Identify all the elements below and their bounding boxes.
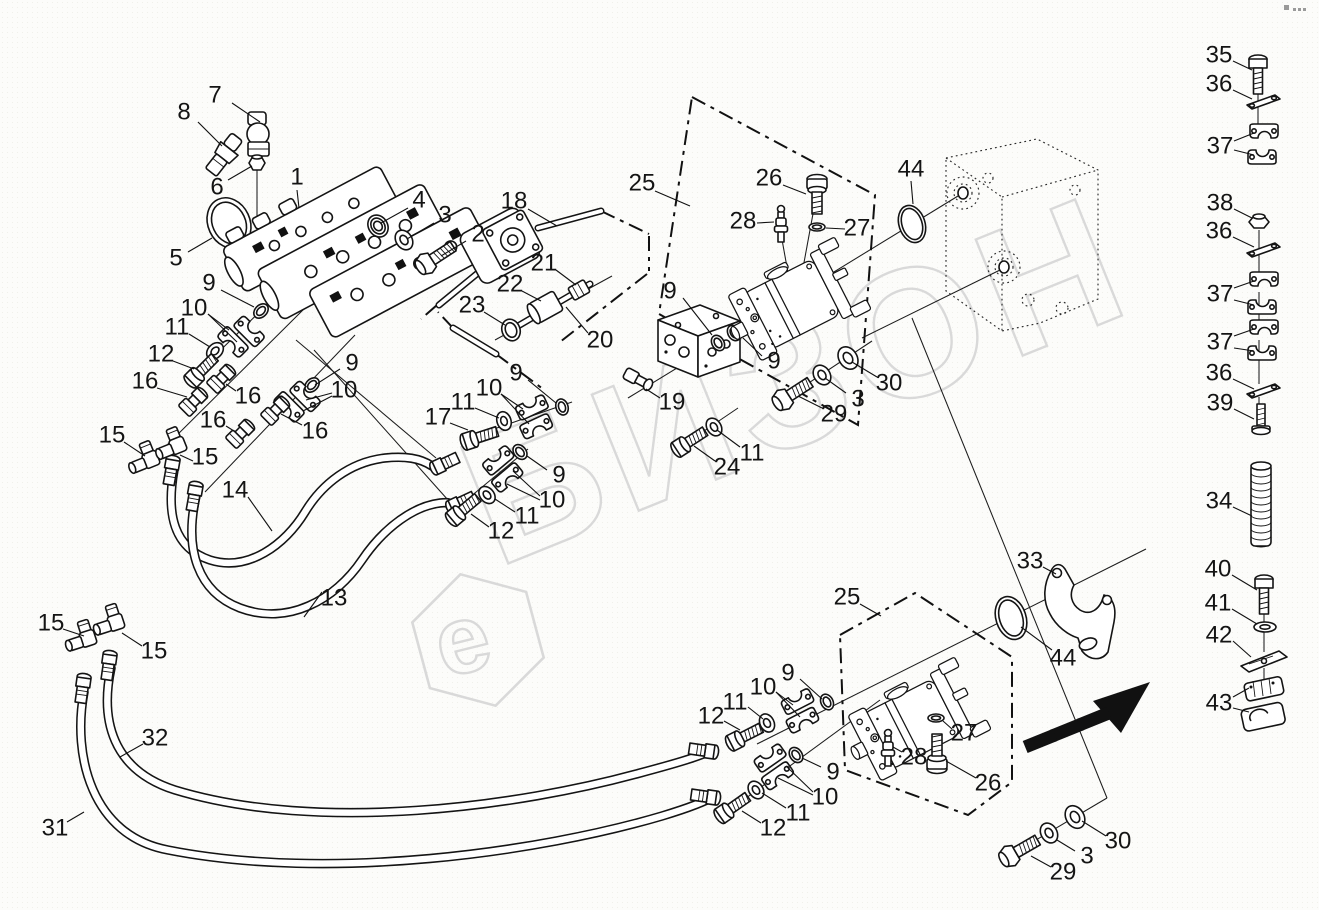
leader-line-21 [556, 270, 576, 285]
part-label-11: 11 [165, 314, 190, 341]
o-ring-27 [928, 714, 944, 722]
clamp-37 [1250, 124, 1278, 138]
part-label-44: 44 [898, 156, 925, 183]
watermark-logo-letter: e [423, 582, 501, 699]
part-label-10: 10 [750, 674, 777, 701]
part-label-11: 11 [515, 503, 540, 530]
clamp-37 [1248, 346, 1276, 360]
part-label-29: 29 [1050, 859, 1077, 886]
plate-36 [1247, 243, 1280, 257]
part-label-39: 39 [1207, 390, 1234, 417]
pipe-clamp-10 [777, 688, 824, 734]
part-label-9: 9 [826, 759, 839, 786]
part-label-12: 12 [760, 815, 787, 842]
direction-arrow [1023, 682, 1150, 753]
part-label-16: 16 [302, 418, 329, 445]
part-label-21: 21 [531, 250, 558, 277]
part-label-2: 2 [471, 221, 484, 248]
washer-30 [1061, 802, 1089, 832]
part-label-25: 25 [834, 584, 861, 611]
part-label-5: 5 [169, 245, 182, 272]
elbow-15 [60, 619, 98, 653]
clamp-37 [1250, 320, 1278, 334]
o-ring-9 [786, 745, 805, 765]
o-ring-27 [809, 223, 825, 231]
part-label-27: 27 [951, 720, 978, 747]
leader-line-9 [802, 758, 821, 767]
part-label-3: 3 [1080, 843, 1093, 870]
leader-line-22 [522, 291, 541, 301]
part-label-9: 9 [767, 348, 780, 375]
leader-line-34 [1233, 507, 1252, 516]
upper-left-fastener-set [60, 301, 322, 653]
part-label-12: 12 [698, 703, 725, 730]
part-label-9: 9 [345, 350, 358, 377]
bolt-40 [1255, 575, 1273, 614]
washer-3 [1037, 820, 1061, 846]
nut-38 [1249, 214, 1269, 228]
leader-line-25 [655, 191, 690, 206]
clamp-block-43-lower [1240, 702, 1286, 732]
screw-39 [1252, 404, 1270, 435]
part-label-31: 31 [42, 815, 69, 842]
part-label-13: 13 [321, 585, 348, 612]
part-label-10: 10 [812, 784, 839, 811]
o-ring-9 [818, 692, 836, 712]
part-label-9: 9 [509, 360, 522, 387]
washer-41 [1254, 622, 1276, 632]
leader-line-12 [742, 811, 761, 823]
part-label-11: 11 [723, 689, 748, 716]
nut-6 [249, 155, 265, 170]
part-label-10: 10 [331, 377, 358, 404]
part-label-22: 22 [497, 271, 524, 298]
o-ring-44 [990, 592, 1032, 643]
part-label-37: 37 [1207, 133, 1234, 160]
clamp-37 [1248, 300, 1276, 314]
leader-line-12 [724, 721, 740, 730]
leader-line-38 [1234, 209, 1252, 218]
leader-line-31 [67, 812, 84, 822]
leader-line-39 [1234, 409, 1254, 419]
part-label-18: 18 [501, 188, 528, 215]
leader-line-5 [188, 238, 212, 252]
part-label-30: 30 [876, 370, 903, 397]
part-label-43: 43 [1206, 690, 1233, 717]
leader-line-20 [566, 307, 588, 333]
part-label-15: 15 [99, 422, 126, 449]
part-label-34: 34 [1206, 488, 1233, 515]
part-label-6: 6 [210, 174, 223, 201]
hose-ferrule [100, 650, 118, 681]
hose-ferrule [185, 480, 204, 511]
hose-ferrule [162, 454, 181, 485]
part-label-33: 33 [1017, 548, 1044, 575]
leader-line-44 [1021, 627, 1052, 650]
leader-line-28 [757, 222, 774, 223]
pipe-clamp-10 [217, 312, 266, 361]
leader-line-9 [221, 290, 254, 307]
part-label-41: 41 [1205, 590, 1232, 617]
part-label-9: 9 [202, 270, 215, 297]
part-label-26: 26 [975, 770, 1002, 797]
fitting-8 [202, 131, 246, 179]
plate-36 [1247, 95, 1280, 109]
leader-line-41 [1232, 609, 1257, 624]
leader-line-25 [860, 604, 881, 616]
part-label-9: 9 [552, 462, 565, 489]
leader-line-23 [484, 312, 505, 325]
clamp-block-43-upper [1244, 676, 1285, 702]
part-label-17: 17 [425, 404, 452, 431]
part-label-37: 37 [1207, 329, 1234, 356]
plate-36 [1247, 384, 1280, 398]
corner-mark [1284, 5, 1306, 11]
leader-line-12 [173, 361, 194, 369]
leader-line-42 [1233, 641, 1251, 657]
part-label-20: 20 [587, 327, 614, 354]
part-label-30: 30 [1105, 828, 1132, 855]
elbow-15 [88, 603, 126, 637]
part-label-9: 9 [663, 278, 676, 305]
leader-line-40 [1232, 575, 1257, 590]
part-label-12: 12 [148, 341, 175, 368]
part-label-15: 15 [141, 638, 168, 665]
part-label-11: 11 [451, 389, 476, 416]
leader-line-29 [1031, 856, 1051, 867]
part-label-29: 29 [821, 401, 848, 428]
part-label-38: 38 [1207, 190, 1234, 217]
parts-diagram-page: БИЗОН e [0, 0, 1319, 910]
part-label-28: 28 [730, 208, 757, 235]
part-label-37: 37 [1207, 281, 1234, 308]
clamp-37 [1248, 150, 1276, 164]
part-label-14: 14 [222, 477, 249, 504]
part-label-16: 16 [132, 368, 159, 395]
part-label-11: 11 [740, 440, 765, 467]
leader-line-16 [226, 426, 234, 431]
leader-line-11 [748, 707, 763, 719]
part-label-3: 3 [851, 386, 864, 413]
part-label-3: 3 [438, 202, 451, 229]
test-valve-28 [775, 206, 788, 243]
part-label-9: 9 [781, 660, 794, 687]
part-label-16: 16 [200, 407, 227, 434]
leader-line-15 [122, 633, 142, 646]
part-label-10: 10 [539, 487, 566, 514]
leader-line-26 [783, 185, 806, 194]
hardware-column [1240, 55, 1287, 732]
part-label-27: 27 [844, 215, 871, 242]
part-label-44: 44 [1050, 645, 1077, 672]
leader-line-26 [946, 761, 976, 778]
part-label-7: 7 [208, 82, 221, 109]
part-label-35: 35 [1206, 42, 1233, 69]
bolt-12 [723, 720, 765, 752]
part-label-8: 8 [177, 99, 190, 126]
clamp-37 [1250, 272, 1278, 286]
elbow-fitting-7 [247, 112, 269, 156]
leader-line-14 [248, 497, 272, 531]
plug-bolt-26 [807, 175, 827, 215]
parts-diagram-canvas: БИЗОН e [0, 0, 1319, 910]
part-label-15: 15 [192, 444, 219, 471]
hose-32 [107, 668, 712, 813]
leader-line-36 [1233, 90, 1252, 99]
part-label-28: 28 [901, 744, 928, 771]
part-label-15: 15 [38, 610, 65, 637]
bolt-29 [995, 830, 1043, 870]
leader-line-27 [826, 228, 845, 229]
part-label-40: 40 [1205, 556, 1232, 583]
bolt-35 [1249, 55, 1267, 94]
pipe-cap-23 [499, 317, 523, 344]
part-label-16: 16 [235, 383, 262, 410]
spiral-sleeve-34 [1251, 462, 1271, 547]
part-label-19: 19 [659, 389, 686, 416]
leader-line-30 [1082, 821, 1106, 836]
part-label-26: 26 [756, 165, 783, 192]
part-label-36: 36 [1206, 360, 1233, 387]
part-label-11: 11 [786, 800, 811, 827]
part-label-36: 36 [1206, 218, 1233, 245]
part-label-23: 23 [459, 292, 486, 319]
leader-line-6 [228, 166, 252, 180]
leader-line-16 [157, 388, 187, 397]
leader-line-11 [762, 793, 786, 808]
leader-line-11 [189, 334, 210, 347]
part-label-12: 12 [488, 518, 515, 545]
part-label-42: 42 [1206, 622, 1233, 649]
leader-line-1 [297, 190, 299, 208]
leader-line-44 [911, 181, 913, 204]
hose-ferrule [74, 673, 92, 704]
hose-14 [171, 457, 432, 563]
part-label-25: 25 [629, 170, 656, 197]
part-label-32: 32 [142, 725, 169, 752]
leader-line-8 [198, 122, 222, 146]
leader-line-36 [1233, 379, 1254, 389]
part-label-24: 24 [714, 454, 741, 481]
part-label-36: 36 [1206, 71, 1233, 98]
leader-line-36 [1233, 237, 1254, 247]
watermark-text: БИЗОН [435, 154, 1157, 604]
gear-pump-bottom-group [834, 565, 1115, 871]
part-label-4: 4 [412, 187, 425, 214]
fitting-16 [225, 417, 257, 449]
part-label-10: 10 [476, 375, 503, 402]
part-label-1: 1 [290, 164, 303, 191]
leader-line-3 [1057, 840, 1075, 851]
